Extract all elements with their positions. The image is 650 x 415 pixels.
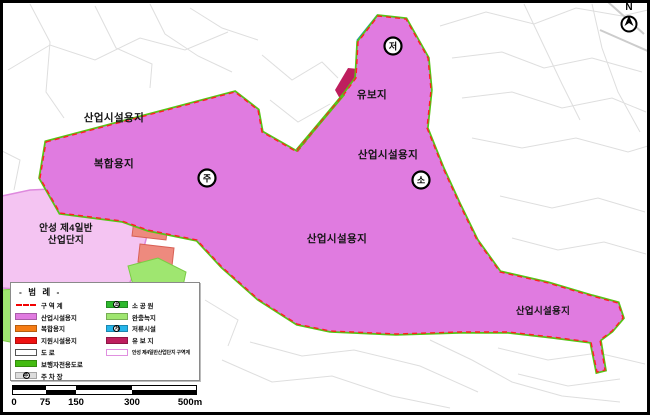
reserved-swatch [106, 337, 128, 344]
symbol-retention: 저 [385, 38, 402, 55]
north-compass-icon [618, 13, 640, 35]
mixed-use-swatch [15, 325, 37, 332]
legend-label: 유 보 지 [132, 335, 154, 345]
park-symbol-icon: 소 [113, 301, 120, 308]
scale-label: 300 [124, 397, 140, 408]
label-industrial-south: 산업시설용지 [307, 232, 367, 245]
scale-bar-segments [12, 385, 197, 395]
legend-label: 완충녹지 [132, 312, 156, 322]
legend-item-industrial: 산업시설용지 [15, 311, 106, 323]
symbol-park: 소 [413, 172, 430, 189]
legend-item-park: 소 소 공 원 [106, 299, 195, 311]
support-swatch [15, 337, 37, 344]
legend-right-column: 소 소 공 원 완충녹지 저 저류시설 유 보 지 안성 제4일반산업 [106, 299, 195, 382]
legend-item-reserved: 유 보 지 [106, 334, 195, 346]
industrial-swatch [15, 313, 37, 320]
legend-item-parking: 주 주 차 장 [15, 370, 106, 382]
boundary-swatch [15, 301, 37, 308]
legend-label: 안성 제4일반산업단지 구역계 [132, 349, 190, 356]
park-swatch: 소 [106, 301, 128, 308]
north-indicator: N [617, 3, 641, 40]
legend-label: 도 로 [41, 347, 55, 357]
scale-bar-labels: 0 75 150 300 500m [12, 395, 197, 409]
label-anseong-1: 안성 제4일반 [39, 222, 93, 234]
legend-label: 지원시설용지 [41, 335, 77, 345]
scale-label: 75 [40, 397, 51, 408]
road-swatch [15, 349, 37, 356]
label-reserved: 유보지 [357, 88, 387, 101]
legend-item-boundary: 구 역 계 [15, 299, 106, 311]
parking-swatch: 주 [15, 372, 37, 379]
legend-label: 소 공 원 [132, 300, 154, 310]
legend-label: 보행자전용도로 [41, 359, 83, 369]
label-industrial-center: 산업시설용지 [358, 148, 418, 161]
pedestrian-swatch [15, 360, 37, 367]
legend-box: - 범 례 - 구 역 계 산업시설용지 복합용지 지원시설용지 [10, 282, 200, 381]
retention-symbol-icon: 저 [113, 325, 120, 332]
label-industrial-east: 산업시설용지 [516, 305, 570, 317]
legend-left-column: 구 역 계 산업시설용지 복합용지 지원시설용지 도 로 [15, 299, 106, 382]
legend-label: 산업시설용지 [41, 312, 77, 322]
north-label: N [617, 3, 641, 13]
buffer-swatch [106, 313, 128, 320]
legend-item-anseong-boundary: 안성 제4일반산업단지 구역계 [106, 346, 195, 358]
symbol-parking: 주 [199, 170, 216, 187]
legend-label: 구 역 계 [41, 300, 63, 310]
legend-title: - 범 례 - [19, 286, 195, 298]
scale-label: 0 [11, 397, 16, 408]
svg-text:저: 저 [389, 41, 397, 52]
anseong-boundary-swatch [106, 349, 128, 356]
legend-label: 저류시설 [132, 323, 156, 333]
scale-bar: 0 75 150 300 500m [12, 385, 212, 413]
svg-text:소: 소 [417, 176, 426, 186]
label-anseong-2: 산업단지 [48, 234, 84, 246]
legend-item-buffer: 완충녹지 [106, 311, 195, 323]
label-mixed-use: 복합용지 [94, 157, 134, 170]
scale-label: 500m [178, 397, 202, 408]
legend-item-mixed-use: 복합용지 [15, 323, 106, 335]
scale-label: 150 [68, 397, 84, 408]
svg-text:주: 주 [203, 174, 211, 184]
landuse-plan-map: 주 소 저 산업시설용지 복합용지 유보지 산업시설용지 산업시설용지 산업시설… [0, 0, 650, 415]
legend-item-retention: 저 저류시설 [106, 323, 195, 335]
label-industrial-nw: 산업시설용지 [84, 111, 144, 124]
legend-item-road: 도 로 [15, 346, 106, 358]
legend-item-support: 지원시설용지 [15, 334, 106, 346]
legend-item-pedestrian: 보행자전용도로 [15, 358, 106, 370]
legend-label: 주 차 장 [41, 371, 63, 381]
legend-label: 복합용지 [41, 323, 65, 333]
retention-swatch: 저 [106, 325, 128, 332]
parking-symbol-icon: 주 [23, 372, 30, 379]
